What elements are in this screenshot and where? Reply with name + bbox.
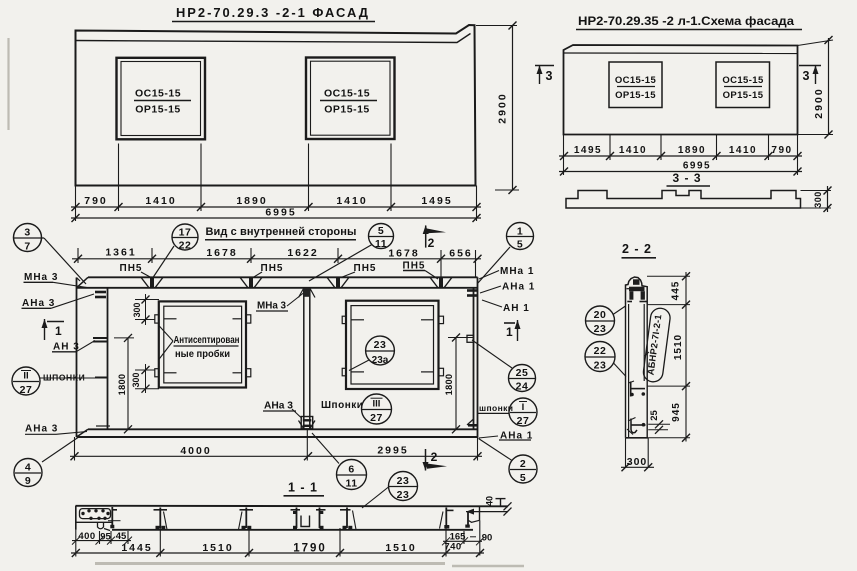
svg-text:1: 1 — [506, 325, 513, 339]
svg-text:АНа 3: АНа 3 — [264, 401, 293, 412]
svg-text:ПН5: ПН5 — [261, 263, 284, 274]
svg-text:23: 23 — [397, 475, 410, 487]
svg-text:2 - 2: 2 - 2 — [622, 242, 652, 256]
svg-text:МНа 3: МНа 3 — [24, 272, 58, 283]
svg-text:МНа 1: МНа 1 — [500, 266, 534, 277]
svg-text:шпонки: шпонки — [479, 403, 513, 413]
svg-text:1890: 1890 — [236, 195, 267, 207]
svg-text:3: 3 — [24, 227, 30, 239]
svg-text:1495: 1495 — [574, 145, 602, 156]
svg-text:1410: 1410 — [619, 145, 647, 156]
svg-text:23: 23 — [374, 339, 387, 351]
svg-text:1510: 1510 — [385, 542, 416, 554]
svg-text:300: 300 — [131, 373, 141, 388]
svg-text:МНа 3: МНа 3 — [257, 301, 286, 312]
svg-text:3: 3 — [803, 69, 810, 83]
svg-text:5: 5 — [378, 225, 384, 237]
svg-text:2900: 2900 — [497, 92, 509, 123]
svg-text:1361: 1361 — [105, 247, 136, 259]
svg-text:ные пробки: ные пробки — [175, 349, 230, 360]
svg-text:ОР15-15: ОР15-15 — [723, 90, 764, 101]
svg-text:ОС15-15: ОС15-15 — [135, 88, 181, 100]
svg-text:1790: 1790 — [293, 543, 327, 555]
svg-text:300: 300 — [813, 191, 823, 208]
svg-text:АН 3: АН 3 — [53, 342, 80, 353]
svg-text:1 - 1: 1 - 1 — [288, 481, 318, 495]
svg-text:5: 5 — [520, 472, 526, 484]
svg-text:22: 22 — [179, 240, 192, 252]
svg-text:6995: 6995 — [265, 207, 296, 219]
svg-text:1510: 1510 — [202, 542, 233, 554]
svg-text:ОР15-15: ОР15-15 — [324, 104, 370, 116]
svg-text:27: 27 — [20, 384, 33, 396]
svg-text:3: 3 — [546, 69, 553, 83]
svg-text:20: 20 — [594, 309, 607, 321]
svg-text:656: 656 — [449, 247, 473, 259]
svg-text:27: 27 — [370, 412, 383, 424]
svg-text:24: 24 — [516, 381, 529, 393]
svg-text:1800: 1800 — [444, 374, 454, 396]
svg-text:2: 2 — [431, 450, 438, 464]
svg-text:300: 300 — [132, 303, 142, 318]
svg-text:45: 45 — [116, 531, 127, 542]
svg-text:400: 400 — [78, 531, 95, 542]
svg-text:АН 1: АН 1 — [503, 303, 530, 314]
svg-text:2: 2 — [520, 458, 526, 470]
svg-text:6995: 6995 — [683, 161, 711, 172]
svg-text:НР2-70.29.3 -2-1 ФАСАД: НР2-70.29.3 -2-1 ФАСАД — [176, 5, 370, 20]
svg-text:1678: 1678 — [206, 247, 237, 259]
svg-text:40: 40 — [485, 496, 495, 506]
svg-text:III: III — [373, 399, 381, 410]
svg-text:23: 23 — [594, 323, 607, 335]
svg-text:ОР15-15: ОР15-15 — [615, 90, 656, 101]
svg-text:1410: 1410 — [729, 145, 757, 156]
svg-text:АНа 1: АНа 1 — [502, 282, 535, 293]
svg-text:945: 945 — [671, 402, 682, 422]
svg-text:АНа 3: АНа 3 — [25, 424, 58, 435]
svg-text:90: 90 — [482, 532, 493, 543]
svg-text:1445: 1445 — [121, 542, 152, 554]
svg-text:1890: 1890 — [678, 145, 706, 156]
svg-text:790: 790 — [84, 195, 108, 207]
svg-text:Антисептирован: Антисептирован — [174, 335, 240, 346]
svg-text:1: 1 — [517, 226, 523, 238]
svg-text:НР2-70.29.35 -2 л-1.Схема фаса: НР2-70.29.35 -2 л-1.Схема фасада — [578, 14, 794, 28]
svg-text:7: 7 — [24, 241, 30, 253]
svg-text:23: 23 — [594, 360, 607, 372]
svg-text:1510: 1510 — [673, 334, 684, 360]
svg-text:5: 5 — [517, 239, 523, 251]
svg-text:1410: 1410 — [336, 195, 367, 207]
svg-text:АНа 3: АНа 3 — [22, 298, 55, 309]
svg-text:1: 1 — [55, 324, 62, 338]
svg-text:9: 9 — [25, 475, 31, 487]
svg-text:Вид с внутренней стороны: Вид с внутренней стороны — [206, 226, 357, 238]
svg-text:95: 95 — [100, 531, 111, 542]
svg-text:23: 23 — [397, 489, 410, 501]
svg-text:11: 11 — [375, 238, 387, 250]
svg-text:Шпонки: Шпонки — [321, 400, 363, 411]
svg-text:25: 25 — [649, 410, 660, 421]
svg-text:11: 11 — [345, 478, 357, 490]
svg-text:ПН5: ПН5 — [120, 263, 143, 274]
svg-text:2900: 2900 — [813, 87, 825, 118]
svg-text:1678: 1678 — [388, 248, 419, 260]
svg-text:4000: 4000 — [180, 445, 211, 457]
svg-text:740: 740 — [444, 542, 461, 553]
svg-text:790: 790 — [771, 145, 792, 156]
svg-text:1800: 1800 — [117, 374, 127, 396]
svg-text:27: 27 — [517, 415, 530, 427]
svg-text:1495: 1495 — [421, 195, 452, 207]
svg-text:ПН5: ПН5 — [354, 263, 377, 274]
svg-text:I: I — [522, 402, 525, 413]
svg-text:2: 2 — [428, 236, 435, 250]
svg-text:2995: 2995 — [377, 444, 408, 456]
svg-text:ОР15-15: ОР15-15 — [135, 104, 181, 116]
svg-text:6: 6 — [348, 464, 354, 476]
svg-text:25: 25 — [516, 367, 529, 379]
svg-text:4: 4 — [25, 462, 31, 474]
svg-text:445: 445 — [671, 281, 682, 301]
svg-text:ОС15-15: ОС15-15 — [615, 75, 657, 86]
svg-text:300: 300 — [627, 456, 648, 468]
svg-text:3 - 3: 3 - 3 — [672, 171, 701, 185]
svg-text:17: 17 — [179, 227, 192, 239]
svg-text:1622: 1622 — [287, 247, 318, 259]
svg-text:1410: 1410 — [145, 195, 176, 207]
svg-text:22: 22 — [594, 345, 607, 357]
svg-text:23а: 23а — [372, 355, 389, 366]
svg-text:II: II — [23, 371, 28, 382]
svg-text:ОС15-15: ОС15-15 — [324, 88, 370, 100]
svg-text:ОС15-15: ОС15-15 — [722, 75, 764, 86]
